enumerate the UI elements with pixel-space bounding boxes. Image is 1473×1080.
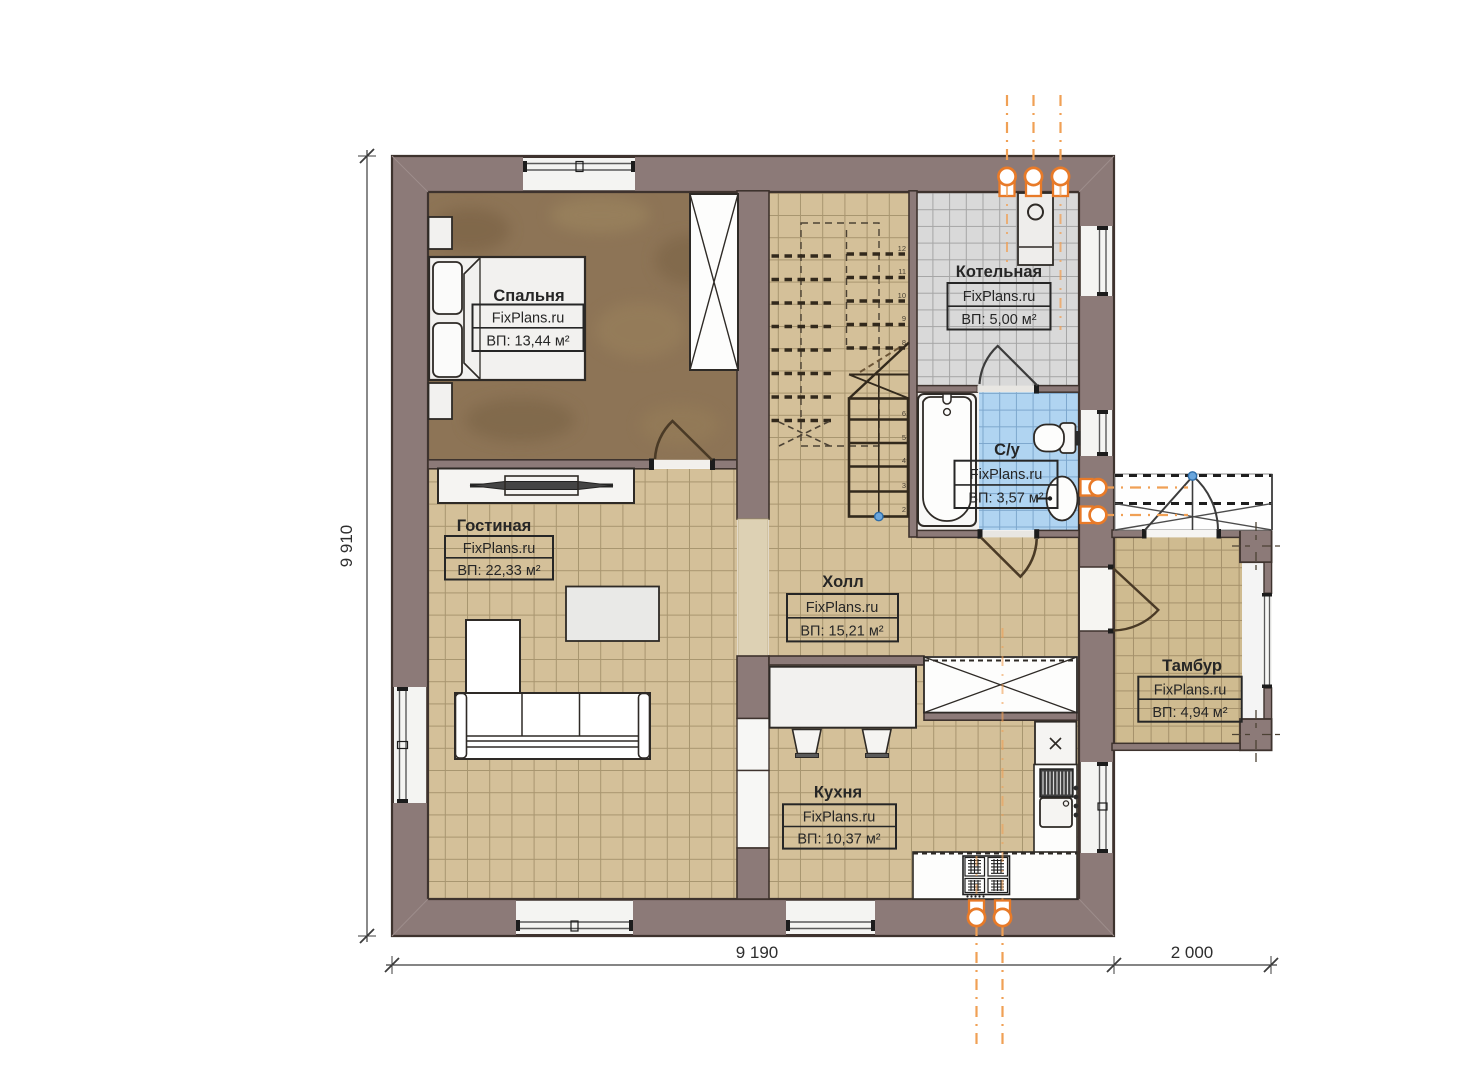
svg-text:9: 9: [902, 314, 906, 323]
svg-text:Котельная: Котельная: [956, 263, 1042, 281]
svg-text:ВП: 22,33 м²: ВП: 22,33 м²: [457, 563, 540, 579]
svg-text:2: 2: [902, 505, 906, 514]
svg-text:ВП: 15,21 м²: ВП: 15,21 м²: [800, 624, 883, 640]
svg-text:FixPlans.ru: FixPlans.ru: [963, 289, 1036, 305]
svg-text:FixPlans.ru: FixPlans.ru: [970, 467, 1043, 483]
svg-text:ВП: 5,00 м²: ВП: 5,00 м²: [961, 312, 1036, 328]
svg-text:10: 10: [898, 291, 906, 300]
svg-text:Холл: Холл: [822, 573, 863, 591]
svg-text:5: 5: [902, 433, 906, 442]
svg-text:С/у: С/у: [994, 441, 1021, 459]
svg-text:Спальня: Спальня: [493, 287, 564, 305]
svg-text:FixPlans.ru: FixPlans.ru: [803, 810, 876, 826]
svg-text:3: 3: [902, 481, 906, 490]
svg-text:11: 11: [898, 267, 906, 276]
svg-text:8: 8: [902, 338, 906, 347]
svg-text:ВП: 13,44 м²: ВП: 13,44 м²: [486, 334, 569, 350]
svg-text:6: 6: [902, 409, 906, 418]
svg-text:2 000: 2 000: [1171, 943, 1214, 962]
svg-text:9 190: 9 190: [736, 943, 779, 962]
svg-text:ВП: 10,37 м²: ВП: 10,37 м²: [797, 832, 880, 848]
svg-text:FixPlans.ru: FixPlans.ru: [806, 600, 879, 616]
svg-text:FixPlans.ru: FixPlans.ru: [492, 311, 565, 327]
svg-text:9 910: 9 910: [337, 525, 356, 568]
svg-text:12: 12: [898, 244, 906, 253]
svg-text:Гостиная: Гостиная: [457, 517, 532, 535]
svg-text:Тамбур: Тамбур: [1162, 657, 1222, 675]
svg-text:FixPlans.ru: FixPlans.ru: [463, 541, 536, 557]
svg-text:FixPlans.ru: FixPlans.ru: [1154, 683, 1227, 699]
svg-text:ВП: 3,57 м²: ВП: 3,57 м²: [968, 491, 1043, 507]
svg-text:ВП: 4,94 м²: ВП: 4,94 м²: [1152, 705, 1227, 721]
svg-text:4: 4: [902, 456, 906, 465]
svg-text:Кухня: Кухня: [814, 784, 862, 802]
